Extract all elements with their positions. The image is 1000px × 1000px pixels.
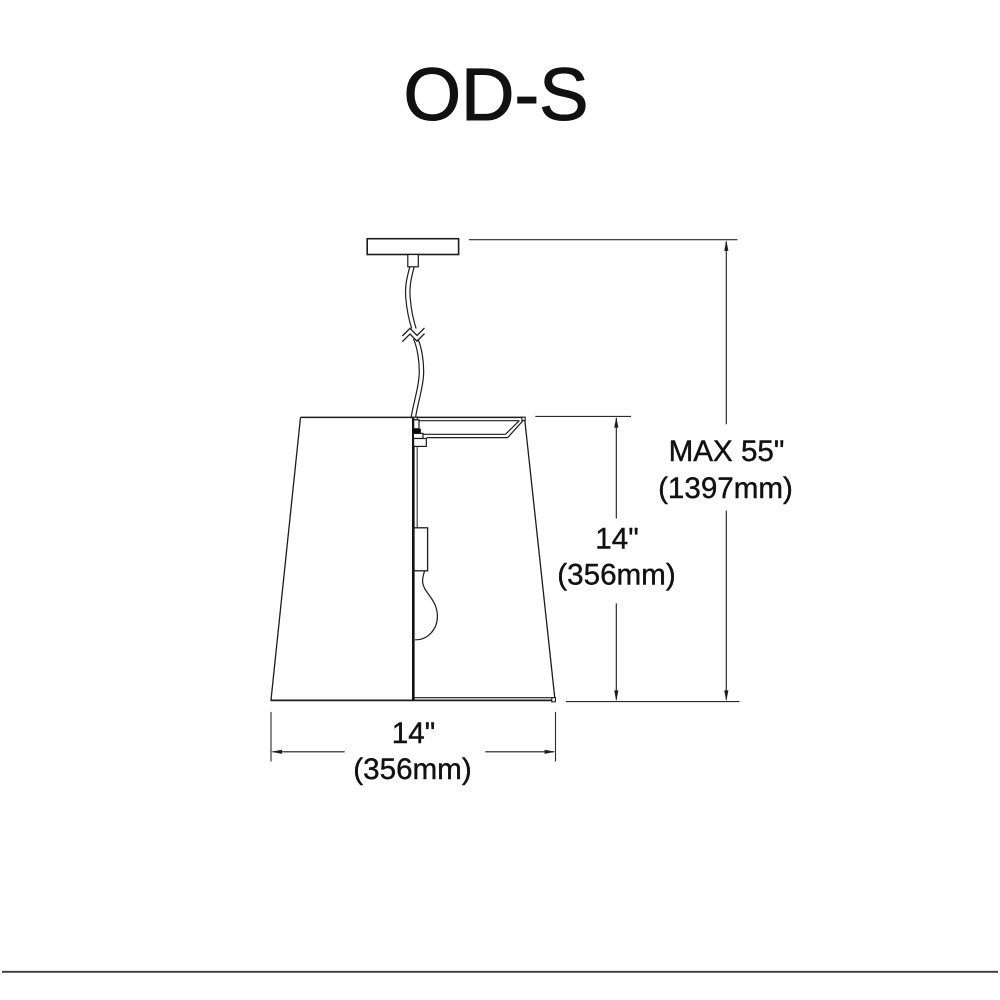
svg-text:OD-S: OD-S — [404, 53, 589, 136]
svg-text:(356mm): (356mm) — [353, 753, 471, 786]
svg-text:MAX 55": MAX 55" — [669, 435, 785, 468]
svg-text:14": 14" — [392, 717, 435, 750]
svg-text:14": 14" — [595, 522, 638, 555]
svg-text:(1397mm): (1397mm) — [658, 472, 793, 505]
svg-text:(356mm): (356mm) — [557, 558, 675, 591]
